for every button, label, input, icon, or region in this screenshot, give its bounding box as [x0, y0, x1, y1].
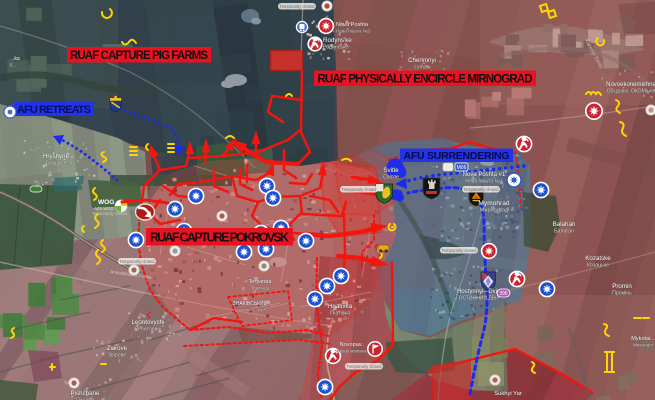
svg-text:Hostynnyi– Dvir: Hostynnyi– Dvir — [457, 289, 499, 295]
svg-text:Temporarily closed: Temporarily closed — [347, 364, 383, 369]
svg-text:Гнатівка: Гнатівка — [330, 310, 350, 316]
svg-text:Світле: Світле — [383, 174, 399, 180]
svg-text:Temporarily closed: Temporarily closed — [342, 187, 378, 192]
svg-text:Leontovychi: Leontovychi — [131, 319, 164, 326]
svg-text:396: 396 — [499, 291, 508, 297]
svg-text:Гришине: Гришине — [45, 160, 66, 166]
svg-text:M06: M06 — [457, 165, 467, 171]
svg-text:ЗНАКІВСЬКИЙ: ЗНАКІВСЬКИЙ — [233, 299, 268, 307]
svg-text:RUAF PHYSICALLY ENCIRCLE MIRNO: RUAF PHYSICALLY ENCIRCLE MIRNOGRAD — [318, 74, 533, 86]
svg-text:Mykolai...: Mykolai... — [631, 336, 655, 342]
svg-text:ШАХТАРСЬКИЙ: ШАХТАРСЬКИЙ — [235, 307, 265, 312]
svg-text:Nova Poshta: Nova Poshta — [336, 22, 369, 28]
svg-text:Б...: Б... — [10, 62, 16, 67]
svg-text:Zvirove: Zvirove — [107, 345, 128, 352]
svg-text:Promin: Promin — [612, 283, 632, 290]
svg-text:Балаган: Балаган — [554, 228, 574, 234]
svg-text:Sukhyi Yar: Sukhyi Yar — [494, 391, 522, 397]
svg-text:RUAF CAPTURE POKROVSK: RUAF CAPTURE POKROVSK — [150, 231, 289, 245]
svg-text:Леонтовичі: Леонтовичі — [135, 326, 162, 332]
svg-text:AFU SURRENDERING: AFU SURRENDERING — [404, 150, 510, 162]
svg-text:Тромада: Тромада — [251, 285, 270, 290]
svg-text:Нова пошта №3: Нова пошта №3 — [336, 28, 371, 33]
svg-text:Temporarily closed: Temporarily closed — [120, 259, 156, 264]
svg-text:Mymohrad: Mymohrad — [478, 200, 509, 207]
svg-text:Промінь: Промінь — [612, 290, 632, 296]
svg-text:Rodyns'ke: Rodyns'ke — [323, 37, 352, 44]
svg-text:AFU RETREATS: AFU RETREATS — [17, 104, 91, 116]
svg-text:Novoekonomichne: Novoekonomichne — [606, 82, 655, 88]
svg-text:Temporarily closed: Temporarily closed — [442, 248, 478, 253]
svg-text:Pishchane: Pishchane — [71, 390, 100, 397]
svg-text:...ka: ...ka — [10, 56, 20, 62]
svg-text:Козацьке: Козацьке — [587, 262, 609, 268]
svg-text:WOG: WOG — [98, 199, 114, 206]
svg-text:Миколаіл: Миколаіл — [633, 342, 653, 347]
svg-text:Kozatske: Kozatske — [585, 255, 611, 262]
svg-text:Нова пошта №1: Нова пошта №1 — [465, 178, 502, 184]
svg-text:Обєднані. ОКОМІчне: Обєднані. ОКОМІчне — [607, 88, 655, 94]
svg-text:Temporarily closed: Temporarily closed — [280, 4, 316, 9]
svg-text:Nova Poshta #1: Nova Poshta #1 — [463, 172, 506, 178]
svg-text:RUAF CAPTURE PIG FARMS: RUAF CAPTURE PIG FARMS — [70, 50, 208, 62]
svg-text:Chervonyi: Chervonyi — [408, 57, 436, 64]
svg-text:Temporarily closed: Temporarily closed — [464, 187, 500, 192]
svg-text:Мирноград: Мирноград — [480, 207, 509, 213]
svg-text:Svitle: Svitle — [383, 167, 399, 174]
svg-text:Родинське: Родинське — [323, 44, 348, 50]
svg-text:Новопавлівка: Новопавлівка — [337, 348, 366, 353]
svg-text:Звірове: Звірове — [108, 352, 127, 358]
svg-text:Novopav..: Novopav.. — [340, 342, 365, 348]
svg-text:Hryshyne: Hryshyne — [43, 153, 70, 160]
svg-text:Teryanda: Teryanda — [248, 279, 272, 285]
svg-text:ГОСТИННИЙ ДВІР: ГОСТИННИЙ ДВІР — [456, 293, 500, 301]
svg-text:Balahan: Balahan — [553, 221, 576, 228]
svg-text:Hnativka: Hnativka — [328, 303, 353, 310]
